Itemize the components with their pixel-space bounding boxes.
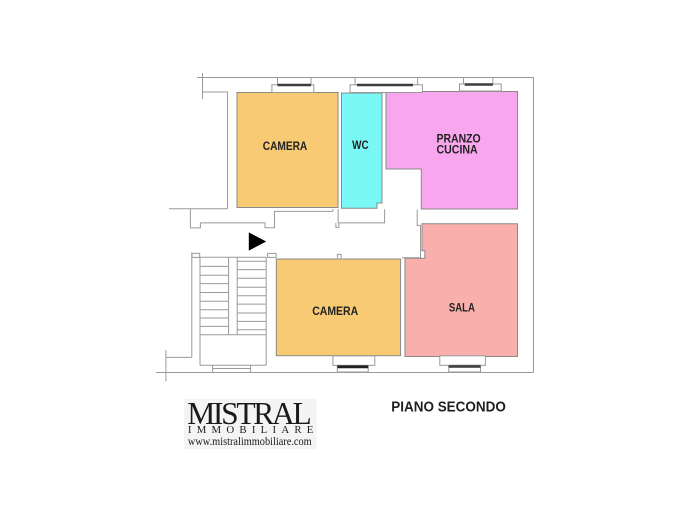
svg-text:CAMERA: CAMERA [312,304,358,318]
svg-text:SALA: SALA [449,300,475,314]
svg-text:WC: WC [352,138,369,152]
svg-text:CAMERA: CAMERA [263,139,308,153]
svg-text:CUCINA: CUCINA [437,142,479,156]
svg-text:PIANO SECONDO: PIANO SECONDO [391,400,506,416]
svg-text:www.mistralimmobiliare.com: www.mistralimmobiliare.com [188,436,312,448]
